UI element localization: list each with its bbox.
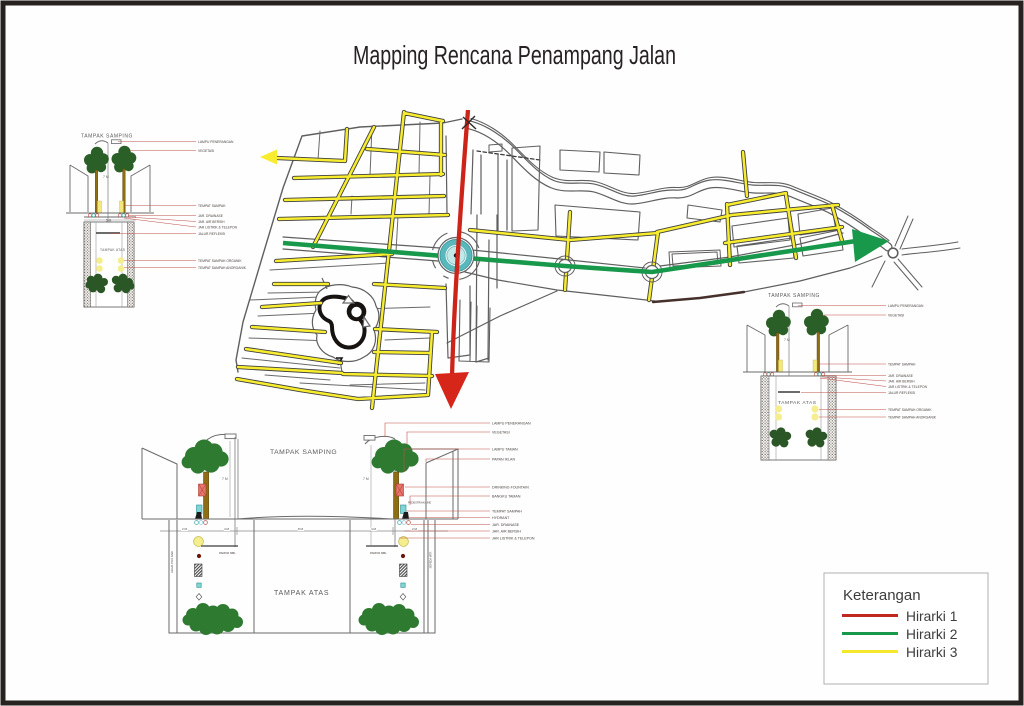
- svg-text:TAMPAK SAMPING: TAMPAK SAMPING: [768, 293, 820, 299]
- svg-text:VEGETASI: VEGETASI: [888, 314, 904, 318]
- svg-text:JAR. DRAINASE: JAR. DRAINASE: [492, 523, 520, 527]
- svg-text:TEMPAT SAMPAH ANORGANIK: TEMPAT SAMPAH ANORGANIK: [198, 266, 247, 270]
- svg-text:2 M: 2 M: [412, 527, 418, 531]
- svg-text:JAR LISTRIK & TELEPON: JAR LISTRIK & TELEPON: [198, 226, 238, 230]
- svg-text:4 M: 4 M: [224, 527, 230, 531]
- svg-text:JAR. AIR BERSIH: JAR. AIR BERSIH: [888, 380, 915, 384]
- svg-text:TAMPAK ATAS: TAMPAK ATAS: [274, 590, 329, 597]
- svg-text:TEMPAT SAMPAH: TEMPAT SAMPAH: [888, 363, 916, 367]
- svg-text:JALUR PJLN KAKI: JALUR PJLN KAKI: [170, 551, 174, 573]
- svg-text:LAMPU TAMAN: LAMPU TAMAN: [492, 448, 518, 452]
- svg-text:VEGETASI: VEGETASI: [198, 149, 214, 153]
- svg-text:JAR. AIR BERSIH: JAR. AIR BERSIH: [198, 220, 225, 224]
- svg-text:JAR. DRAINASE: JAR. DRAINASE: [888, 374, 914, 378]
- svg-text:Hirarki 1: Hirarki 1: [906, 609, 957, 624]
- svg-text:PARKIR MBL: PARKIR MBL: [370, 551, 387, 555]
- svg-text:JAR. DRAINASE: JAR. DRAINASE: [198, 214, 224, 218]
- svg-text:LAMPU PENERANGAN: LAMPU PENERANGAN: [198, 140, 234, 144]
- svg-text:Mapping Rencana Penampang Jala: Mapping Rencana Penampang Jalan: [353, 42, 676, 70]
- svg-text:7 M: 7 M: [222, 477, 228, 481]
- svg-text:8 M: 8 M: [298, 527, 304, 531]
- svg-text:JAR LISTRIK & TELEPON: JAR LISTRIK & TELEPON: [492, 537, 535, 541]
- svg-text:7 M: 7 M: [784, 338, 790, 342]
- svg-text:DRINKING FOUNTAIN: DRINKING FOUNTAIN: [492, 486, 529, 490]
- svg-text:PAPAN IKLAN: PAPAN IKLAN: [492, 458, 515, 462]
- svg-text:Hirarki 3: Hirarki 3: [906, 645, 958, 660]
- svg-text:TAMPAK ATAS: TAMPAK ATAS: [778, 400, 817, 406]
- svg-text:JALUR REFLEKSI: JALUR REFLEKSI: [888, 391, 915, 395]
- svg-text:TAMPAK SAMPING: TAMPAK SAMPING: [270, 449, 337, 456]
- svg-text:Keterangan: Keterangan: [843, 587, 921, 604]
- svg-text:TEMPAT SAMPAH ANORGANIK: TEMPAT SAMPAH ANORGANIK: [888, 416, 937, 420]
- svg-text:7 M: 7 M: [103, 175, 109, 179]
- svg-text:TAMPAK SAMPING: TAMPAK SAMPING: [81, 134, 133, 140]
- svg-text:JAR LISTRIK & TELEPON: JAR LISTRIK & TELEPON: [888, 385, 928, 389]
- svg-text:TEMPAT SAMPAH: TEMPAT SAMPAH: [492, 510, 522, 514]
- svg-text:TAMPAK ATAS: TAMPAK ATAS: [100, 248, 126, 252]
- svg-text:TEMPAT SAMPAH ORGANIK: TEMPAT SAMPAH ORGANIK: [198, 259, 242, 263]
- svg-text:VEGETASI: VEGETASI: [492, 431, 510, 435]
- svg-text:TEMPAT SAMPAH ORGANIK: TEMPAT SAMPAH ORGANIK: [888, 408, 932, 412]
- svg-text:Hirarki 2: Hirarki 2: [906, 627, 957, 642]
- svg-text:PEDESTRIAN LINE: PEDESTRIAN LINE: [408, 501, 431, 505]
- svg-text:2 M: 2 M: [182, 527, 188, 531]
- svg-text:BANGKU TAMAN: BANGKU TAMAN: [492, 495, 521, 499]
- svg-text:JAR. AIR BERSIH: JAR. AIR BERSIH: [492, 530, 521, 534]
- svg-text:TEMPAT SAMPAH: TEMPAT SAMPAH: [198, 204, 226, 208]
- svg-text:JALUR REFLEKSI: JALUR REFLEKSI: [198, 232, 225, 236]
- svg-text:PARKIR MBL: PARKIR MBL: [219, 551, 236, 555]
- svg-text:LAMPU PENERANGAN: LAMPU PENERANGAN: [492, 422, 531, 426]
- svg-text:4 M: 4 M: [371, 527, 377, 531]
- svg-text:HYDRANT: HYDRANT: [492, 516, 510, 520]
- svg-text:7 M: 7 M: [363, 477, 369, 481]
- svg-text:SEPEDA MTR: SEPEDA MTR: [429, 552, 433, 569]
- svg-text:LAMPU PENERANGAN: LAMPU PENERANGAN: [888, 304, 924, 308]
